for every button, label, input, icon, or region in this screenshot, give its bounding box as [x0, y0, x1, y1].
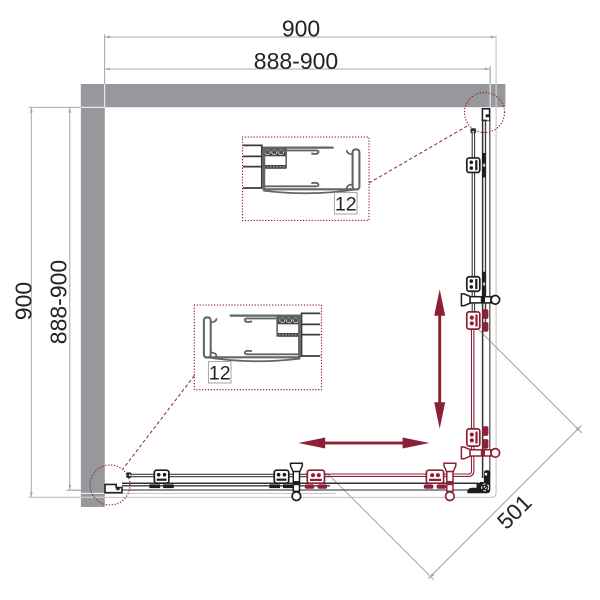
- svg-text:888-900: 888-900: [46, 260, 72, 344]
- svg-text:12: 12: [209, 363, 231, 385]
- svg-text:900: 900: [282, 16, 320, 42]
- svg-text:888-900: 888-900: [254, 48, 338, 74]
- svg-text:900: 900: [11, 282, 37, 320]
- svg-text:12: 12: [335, 194, 357, 216]
